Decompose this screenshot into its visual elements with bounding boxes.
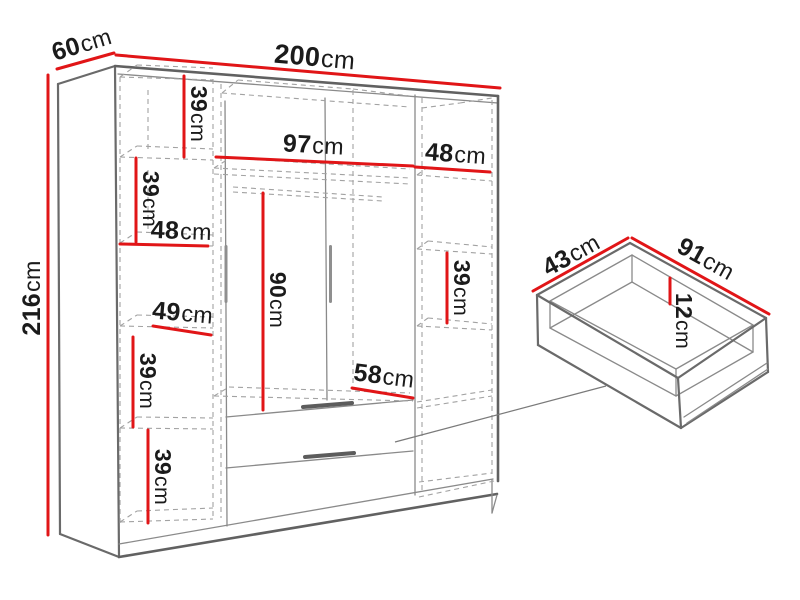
dim-label-left-shelf-3: 39cm [135, 353, 161, 409]
dim-label-left-width-48: 48cm [150, 216, 212, 246]
dim-label-left-shelf-1: 39cm [186, 86, 212, 142]
dim-label-hanging-90: 90cm [265, 272, 291, 328]
dim-label-right-width-48: 48cm [424, 138, 487, 170]
dim-line-middle-width-97 [216, 157, 413, 166]
door-handle-left [225, 245, 228, 303]
drawer-handles [303, 403, 354, 457]
dim-label-right-shelf-39: 39cm [449, 260, 475, 316]
wardrobe-dimension-diagram: 216cm 200cm 60cm 39cm 39cm 48cm 49cm 39c… [0, 0, 800, 600]
dim-label-height-216: 216cm [18, 260, 46, 335]
dim-label-depth-60: 60cm [48, 22, 115, 67]
dim-label-middle-width-97: 97cm [282, 129, 344, 160]
interior-middle-section [214, 80, 413, 401]
dim-label-left-width-49: 49cm [151, 296, 214, 329]
diagram-canvas: 216cm 200cm 60cm 39cm 39cm 48cm 49cm 39c… [0, 0, 800, 600]
door-handle-right [329, 245, 332, 303]
dim-label-left-shelf-4: 39cm [150, 449, 176, 505]
drawer-callout-line [395, 386, 606, 442]
dim-label-drawer-height-12: 12cm [671, 293, 697, 349]
dim-label-drawer-depth-43: 43cm [538, 228, 605, 282]
